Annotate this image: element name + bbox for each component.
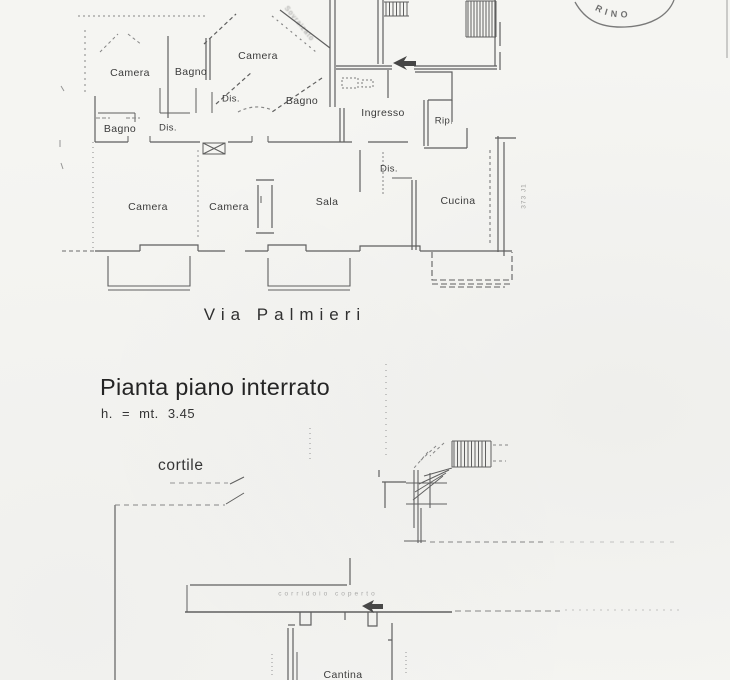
room-label-rip: Rip. <box>435 116 454 127</box>
room-label-camera-4: Camera <box>209 201 249 213</box>
room-label-bagno-1: Bagno <box>175 66 207 78</box>
corridor-note: corridoio coperto <box>278 591 377 598</box>
room-label-camera-3: Camera <box>128 201 168 213</box>
height-note: h. = mt. 3.45 <box>101 406 195 421</box>
room-label-dis-2: Dis. <box>159 123 177 134</box>
room-label-dis-1: Dis. <box>222 94 240 105</box>
room-label-cucina: Cucina <box>440 195 475 207</box>
cellar-label: Cantina <box>324 669 363 680</box>
diagonal-annotation: Sovralzato <box>283 5 316 43</box>
room-label-bagno-3: Bagno <box>104 123 136 135</box>
street-label: Via Palmieri <box>204 305 366 325</box>
room-label-dis-3: Dis. <box>380 164 398 175</box>
courtyard-label: cortile <box>158 457 204 475</box>
room-label-camera-1: Camera <box>110 67 150 79</box>
scanned-floorplan-page: RINO Camera Bagno Camera Bagno Dis. Ingr… <box>0 0 730 680</box>
room-label-sala: Sala <box>316 196 339 208</box>
room-label-camera-2: Camera <box>238 50 278 62</box>
room-label-bagno-2: Bagno <box>286 95 318 107</box>
vertical-side-note: 373 J1 <box>521 183 528 209</box>
basement-title: Pianta piano interrato <box>100 374 330 401</box>
floorplan-labels: Camera Bagno Camera Bagno Dis. Ingresso … <box>0 0 730 680</box>
room-label-ingresso: Ingresso <box>361 107 404 119</box>
